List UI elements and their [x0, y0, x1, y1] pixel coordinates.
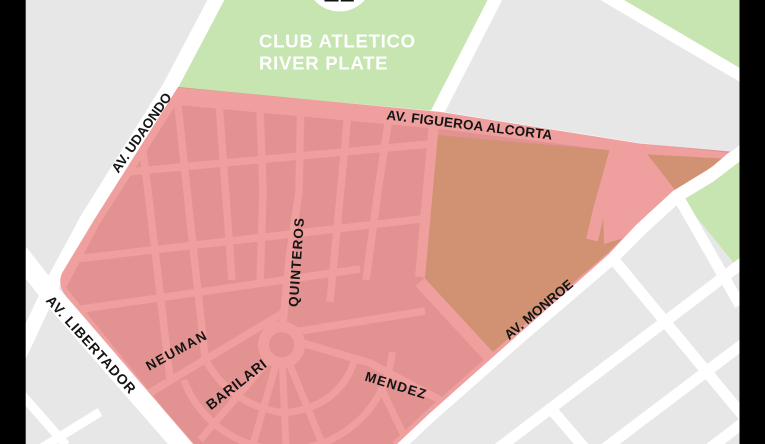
svg-text:CLUB ATLETICO: CLUB ATLETICO — [259, 31, 416, 52]
svg-text:RIVER PLATE: RIVER PLATE — [259, 53, 388, 74]
